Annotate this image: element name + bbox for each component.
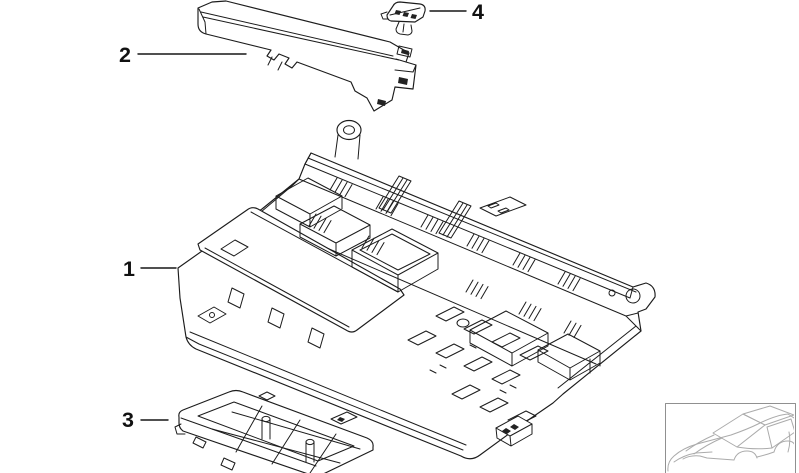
parts-diagram-page: 1 2 3 4 (0, 0, 799, 473)
car-roof (743, 406, 794, 425)
part-number-4[interactable]: 4 (472, 0, 484, 24)
thumbnail-frame (666, 404, 796, 473)
car-icon (668, 406, 796, 471)
vehicle-thumbnail (666, 404, 797, 473)
rail-slide-plate (480, 197, 526, 216)
part-number-2[interactable]: 2 (119, 43, 131, 67)
callout-3[interactable]: 3 (122, 408, 168, 432)
lower-tray-slot (337, 417, 345, 422)
car-hood-creases (686, 435, 772, 454)
retaining-clip-outline (387, 2, 425, 22)
mounting-ring (337, 121, 361, 140)
car-windshield (713, 414, 765, 447)
callout-4[interactable]: 4 (430, 0, 484, 24)
upper-cover-outline (198, 1, 416, 111)
car-body-outline (668, 414, 794, 471)
exploded-diagram: 1 2 3 4 (0, 0, 799, 473)
part-number-3[interactable]: 3 (122, 408, 134, 432)
callout-1[interactable]: 1 (123, 257, 176, 281)
part-number-1[interactable]: 1 (123, 257, 135, 281)
part-upper-cover (198, 1, 416, 111)
part-retaining-clip (381, 2, 425, 35)
car-wheels (734, 441, 796, 460)
callout-2[interactable]: 2 (119, 43, 246, 67)
